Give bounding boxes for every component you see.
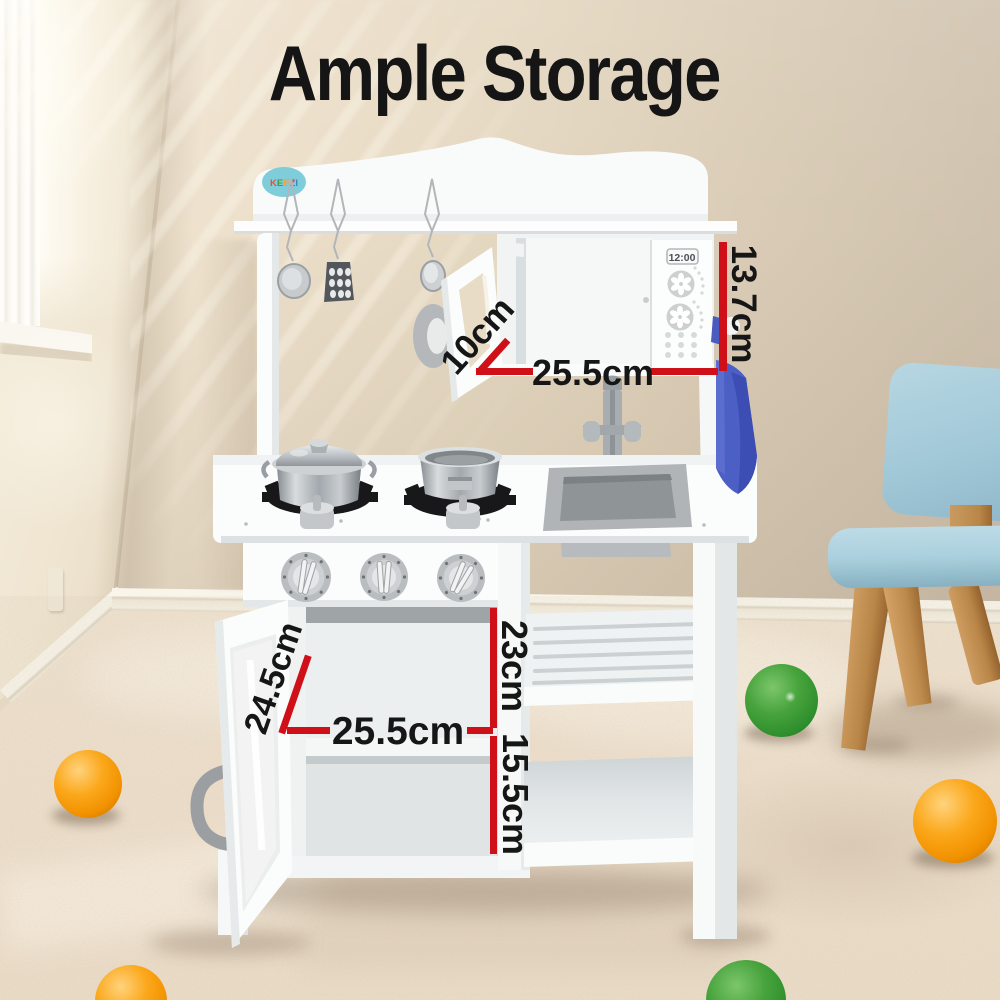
svg-text:KEEZI: KEEZI xyxy=(270,178,298,189)
svg-text:12:00: 12:00 xyxy=(669,252,696,264)
